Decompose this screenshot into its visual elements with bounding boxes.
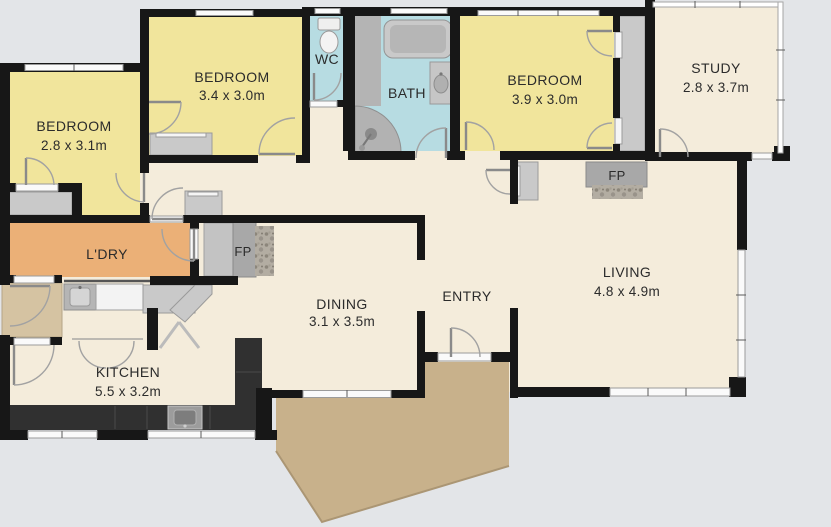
window bbox=[478, 11, 599, 16]
label-bedroom-right-dims: 3.9 x 3.0m bbox=[512, 92, 578, 107]
label-living-dims: 4.8 x 4.9m bbox=[594, 284, 660, 299]
label-living-name: LIVING bbox=[603, 264, 651, 280]
door-threshold bbox=[438, 353, 491, 361]
laundry-sink-fixture bbox=[64, 284, 96, 310]
label-study-dims: 2.8 x 3.7m bbox=[683, 80, 749, 95]
door-threshold bbox=[14, 276, 54, 283]
label-laundry: L'DRY bbox=[86, 246, 128, 262]
label-bedroom-mid-dims: 3.4 x 3.0m bbox=[199, 88, 265, 103]
label-fireplace-dining: FP bbox=[234, 244, 251, 259]
window bbox=[738, 250, 745, 377]
label-wc: WC bbox=[315, 51, 339, 67]
label-entry: ENTRY bbox=[442, 288, 491, 304]
label-bedroom-left-name: BEDROOM bbox=[36, 118, 111, 134]
window bbox=[315, 9, 340, 14]
label-fireplace-living: FP bbox=[608, 168, 625, 183]
vanity-basin-fixture bbox=[430, 62, 452, 104]
wardrobe-bedroom-left bbox=[7, 192, 72, 215]
window bbox=[752, 153, 772, 159]
bath-tiled-wall bbox=[355, 16, 381, 106]
door-threshold bbox=[14, 338, 50, 345]
study-glass-wall bbox=[653, 2, 781, 7]
label-kitchen-name: KITCHEN bbox=[96, 364, 160, 380]
floorplan-svg: BEDROOM 2.8 x 3.1m BEDROOM 3.4 x 3.0m WC… bbox=[0, 0, 831, 527]
label-bath: BATH bbox=[388, 85, 426, 101]
label-study-name: STUDY bbox=[691, 60, 741, 76]
label-bedroom-mid-name: BEDROOM bbox=[194, 69, 269, 85]
label-kitchen-dims: 5.5 x 3.2m bbox=[95, 384, 161, 399]
kitchen-sink-fixture bbox=[168, 406, 202, 429]
label-bedroom-left-dims: 2.8 x 3.1m bbox=[41, 138, 107, 153]
wardrobe-slider bbox=[16, 184, 58, 191]
laundry-counter bbox=[96, 284, 143, 310]
window bbox=[391, 9, 447, 14]
label-dining-name: DINING bbox=[316, 296, 367, 312]
study-glass-wall bbox=[778, 2, 783, 153]
floorplan-image: BEDROOM 2.8 x 3.1m BEDROOM 3.4 x 3.0m WC… bbox=[0, 0, 831, 527]
porch bbox=[2, 283, 62, 337]
door-threshold bbox=[310, 101, 337, 107]
label-dining-dims: 3.1 x 3.5m bbox=[309, 314, 375, 329]
window bbox=[610, 388, 730, 396]
window bbox=[196, 11, 253, 16]
label-bedroom-right-name: BEDROOM bbox=[507, 72, 582, 88]
toilet-fixture bbox=[318, 18, 340, 53]
bathtub-fixture bbox=[384, 20, 452, 58]
